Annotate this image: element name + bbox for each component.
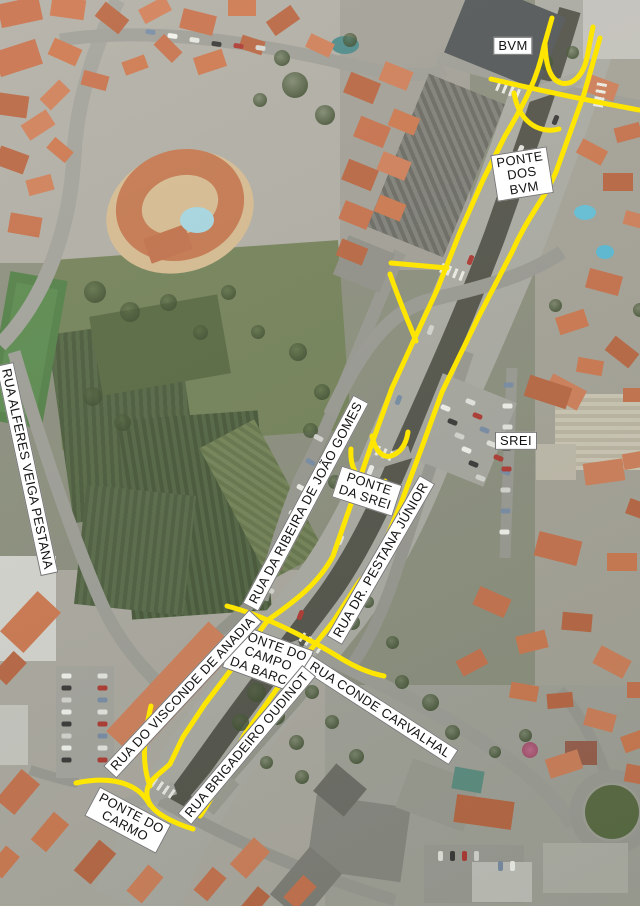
- parked-car: [501, 467, 511, 472]
- terrain-patch: [89, 294, 231, 395]
- roof: [336, 238, 369, 265]
- roof: [0, 145, 30, 174]
- aerial-buildings-layer: [0, 0, 640, 906]
- roof: [546, 691, 573, 708]
- parked-car: [336, 534, 344, 545]
- tree: [445, 725, 460, 740]
- route-joao-gomes-merge: [390, 274, 416, 341]
- label-rua-conde-carvalhal: RUA CONDE CARVALHAL: [302, 655, 458, 765]
- tree: [362, 596, 374, 608]
- parked-car: [366, 464, 374, 475]
- terrain-patch: [536, 444, 576, 480]
- terrain-patch: [0, 271, 68, 429]
- tree: [289, 735, 304, 750]
- parked-car: [97, 746, 107, 751]
- parked-car: [97, 734, 107, 739]
- tree: [328, 475, 342, 489]
- terrain-patch: [543, 843, 628, 893]
- roof: [509, 682, 539, 703]
- parked-car: [492, 454, 503, 462]
- parked-car: [61, 710, 71, 715]
- roof: [0, 769, 40, 815]
- parked-car: [97, 698, 107, 703]
- tree: [349, 749, 364, 764]
- roof: [138, 0, 172, 24]
- terrain-patch: [565, 741, 597, 765]
- roof: [154, 34, 183, 63]
- route-srei-u-turn-south: [351, 449, 385, 484]
- roof: [374, 194, 407, 221]
- roof: [524, 375, 573, 410]
- parked-car: [61, 758, 71, 763]
- terrain-patch: [313, 763, 367, 816]
- parked-car: [474, 474, 485, 482]
- parked-car: [296, 609, 304, 620]
- route-bvm-cross-street: [491, 79, 639, 110]
- tree: [537, 54, 553, 70]
- photo-tint: [0, 0, 640, 906]
- parked-car: [61, 698, 71, 703]
- parked-car: [61, 686, 71, 691]
- tree: [268, 708, 285, 725]
- parked-car: [61, 722, 71, 727]
- tree: [295, 770, 309, 784]
- roof: [305, 33, 335, 58]
- tree: [251, 325, 265, 339]
- roof: [343, 72, 381, 104]
- label-ponte-do-carmo: PONTE DO CARMO: [85, 787, 172, 854]
- tree: [260, 756, 273, 769]
- route-anadia-approach: [144, 706, 151, 786]
- roof: [620, 727, 640, 753]
- terrain-patch: [0, 556, 56, 661]
- pool: [331, 36, 359, 54]
- parked-car: [61, 674, 71, 679]
- parked-car: [438, 851, 443, 861]
- roof: [193, 867, 226, 902]
- parked-car: [97, 722, 107, 727]
- roof: [126, 865, 163, 904]
- route-highlight-overlay: [0, 0, 640, 906]
- parked-car: [471, 412, 482, 420]
- parked-car: [516, 144, 524, 155]
- roof: [95, 2, 130, 35]
- roof: [50, 0, 86, 20]
- parked-car: [460, 446, 471, 454]
- parked-car: [279, 535, 290, 544]
- parked-car: [287, 509, 298, 518]
- terrain-patch: [74, 485, 196, 616]
- roof: [0, 92, 29, 119]
- tree: [83, 387, 102, 406]
- tree: [253, 93, 267, 107]
- tree: [422, 694, 439, 711]
- parked-car: [97, 686, 107, 691]
- parked-car: [502, 425, 512, 430]
- tree: [221, 285, 236, 300]
- parked-car: [453, 432, 464, 440]
- parked-car: [464, 398, 475, 406]
- label-ponte-do-campo-da-barca: PONTE DO CAMPO DA BARCA: [222, 623, 314, 695]
- tree: [282, 72, 308, 98]
- crosswalk: [439, 263, 465, 281]
- roof: [543, 373, 587, 410]
- roof: [585, 74, 619, 101]
- route-bvm-slip-lane: [514, 93, 559, 130]
- roof: [472, 586, 511, 618]
- terrain-patch: [199, 419, 324, 581]
- roof: [622, 450, 640, 470]
- terrain-patch: [90, 132, 270, 292]
- tree: [395, 675, 409, 689]
- roof: [81, 69, 110, 90]
- roof: [353, 116, 391, 148]
- tree: [489, 746, 501, 758]
- tree: [160, 294, 177, 311]
- roof: [378, 61, 413, 91]
- terrain-patch: [444, 0, 566, 90]
- parked-car: [255, 45, 266, 51]
- terrain-patch: [325, 685, 640, 906]
- tree: [315, 105, 335, 125]
- parked-car: [97, 758, 107, 763]
- map-labels: BVMPONTE DOS BVMSREIPONTE DA SREIRUA DA …: [0, 0, 640, 906]
- terrain-patch: [306, 794, 411, 881]
- terrain-patch: [555, 394, 640, 470]
- crosswalk: [495, 81, 521, 99]
- roof: [338, 200, 373, 230]
- label-srei: SREI: [495, 432, 537, 450]
- parked-car: [466, 254, 474, 265]
- label-rua-do-visconde-de-anadia: RUA DO VISCONDE DE ANADIA: [103, 609, 263, 778]
- roof: [8, 212, 43, 237]
- route-srei-u-turn-north: [372, 432, 408, 456]
- roof: [625, 498, 640, 522]
- parked-car: [503, 383, 513, 388]
- terrain-patch: [472, 862, 532, 902]
- river-channel: [172, 10, 570, 806]
- route-main-line-west: [147, 18, 552, 829]
- roof: [585, 268, 623, 296]
- roof: [576, 138, 608, 165]
- roof: [341, 159, 379, 191]
- parked-car: [500, 530, 510, 535]
- tree: [343, 33, 357, 47]
- tree: [280, 694, 293, 707]
- parked-car: [467, 460, 478, 468]
- parked-car: [167, 33, 178, 39]
- label-rua-dr-pestana-junior: RUA DR. PESTANA JÚNIOR: [327, 475, 436, 645]
- terrain-patch: [340, 0, 470, 270]
- roof: [561, 612, 592, 633]
- parked-car: [271, 561, 282, 570]
- terrain-patch: [47, 317, 202, 523]
- route-main-line-east: [200, 38, 600, 816]
- roof: [193, 49, 227, 75]
- roof: [0, 591, 60, 653]
- roof: [583, 707, 617, 732]
- roof: [0, 39, 43, 77]
- pool: [574, 205, 596, 220]
- roof: [21, 109, 56, 140]
- roof: [240, 886, 270, 906]
- terrain-patch: [409, 373, 517, 486]
- terrain-patch: [49, 240, 352, 450]
- roof: [605, 336, 640, 369]
- terrain-patch: [118, 410, 272, 619]
- crosswalk: [150, 777, 175, 799]
- parked-car: [496, 184, 504, 195]
- tree: [305, 685, 319, 699]
- roof: [31, 812, 69, 852]
- aerial-terrain-base: [0, 0, 640, 906]
- terrain-patch: [56, 666, 114, 778]
- terrain-patch: [367, 73, 505, 257]
- tree: [519, 729, 532, 742]
- overpass-ramp: [330, 252, 562, 415]
- roof: [230, 837, 270, 878]
- terrain-patch: [191, 765, 240, 815]
- parked-car: [485, 440, 496, 448]
- roof: [0, 651, 27, 685]
- parked-car: [97, 710, 107, 715]
- terrain-patch: [451, 767, 484, 794]
- parked-car: [501, 488, 511, 493]
- pool: [180, 207, 214, 233]
- parked-car: [478, 426, 489, 434]
- label-bvm: BVM: [493, 37, 532, 55]
- parked-car: [263, 585, 274, 594]
- parked-car: [233, 43, 244, 49]
- parked-car: [97, 674, 107, 679]
- terrain-patch: [333, 235, 395, 293]
- parked-car: [510, 861, 515, 871]
- terrain-patch: [424, 845, 524, 903]
- label-ponte-da-srei: PONTE DA SREI: [331, 466, 402, 517]
- parked-car: [61, 734, 71, 739]
- roof: [121, 54, 148, 75]
- terrain-patch: [0, 282, 58, 417]
- terrain-patch: [0, 705, 28, 765]
- pool: [596, 245, 614, 259]
- parked-car: [251, 666, 259, 677]
- label-ponte-dos-bvm: PONTE DOS BVM: [490, 146, 553, 201]
- tree: [325, 715, 339, 729]
- terrain-patch: [583, 0, 640, 59]
- tree: [345, 615, 360, 630]
- roof: [555, 309, 589, 335]
- roof: [74, 840, 117, 885]
- tree: [274, 50, 290, 66]
- roof: [545, 749, 584, 779]
- road-network: [0, 0, 640, 906]
- label-rua-brigadeiro-oudinot: RUA BRIGADEIRO OUDINOT: [178, 665, 317, 826]
- tree: [386, 636, 399, 649]
- label-rua-da-ribeira-de-joao-gomes: RUA DA RIBEIRA DE JOÃO GOMES: [242, 394, 369, 611]
- parked-car: [426, 324, 434, 335]
- roundabout: [576, 776, 640, 848]
- parked-car: [304, 457, 315, 466]
- terrain-patch: [101, 133, 259, 278]
- parked-car: [145, 29, 156, 35]
- parked-car: [462, 851, 467, 861]
- roof: [46, 137, 73, 163]
- roof: [179, 8, 217, 36]
- parked-car: [439, 404, 450, 412]
- roof: [283, 875, 316, 906]
- roof: [266, 4, 300, 35]
- roof: [25, 174, 54, 196]
- parked-car: [551, 114, 559, 125]
- terrain-patch: [270, 847, 342, 906]
- crosswalk: [298, 632, 323, 654]
- flowering-tree: [522, 742, 538, 758]
- roof: [388, 108, 421, 135]
- terrain-patch: [0, 570, 330, 906]
- roof: [614, 121, 640, 142]
- terrain-patch: [535, 0, 640, 125]
- parked-car: [312, 433, 323, 442]
- satellite-map-view[interactable]: BVMPONTE DOS BVMSREIPONTE DA SREIRUA DA …: [0, 0, 640, 906]
- bridge-decks: [125, 78, 580, 805]
- roof: [603, 173, 633, 191]
- roof: [48, 38, 83, 67]
- tree: [247, 683, 266, 702]
- roof: [0, 0, 43, 28]
- tree: [549, 299, 562, 312]
- parked-car: [450, 851, 455, 861]
- roof: [623, 210, 640, 230]
- tree: [303, 423, 318, 438]
- tree: [193, 325, 208, 340]
- route-bvm-u-turn: [545, 27, 593, 83]
- roof: [583, 458, 626, 485]
- route-joao-gomes-stub: [391, 263, 447, 268]
- tree: [120, 302, 140, 322]
- terrain-patch: [395, 758, 480, 831]
- roof: [39, 79, 70, 110]
- crosswalk: [593, 82, 607, 107]
- parked-car: [498, 861, 503, 871]
- parked-car: [394, 394, 402, 405]
- route-carmo-west-branch: [76, 780, 150, 805]
- parked-car: [500, 509, 510, 514]
- roof: [627, 682, 640, 698]
- roof: [228, 0, 256, 16]
- roof: [592, 645, 631, 679]
- roof: [576, 356, 604, 375]
- tree: [314, 384, 330, 400]
- roof: [376, 151, 411, 181]
- roof: [623, 388, 640, 402]
- terrain-patch: [535, 50, 640, 906]
- roof: [106, 622, 238, 759]
- roof: [534, 531, 583, 566]
- tree: [84, 281, 106, 303]
- tree: [114, 414, 131, 431]
- parked-car: [61, 746, 71, 751]
- terrain-patch: [0, 0, 343, 263]
- tree: [289, 343, 307, 361]
- roof: [0, 845, 20, 878]
- roof: [456, 648, 489, 676]
- parked-car: [295, 483, 306, 492]
- parked-car: [474, 851, 479, 861]
- terrain-patch: [143, 224, 193, 263]
- tree: [566, 46, 579, 59]
- roof: [607, 553, 637, 571]
- roof: [238, 35, 265, 56]
- roof: [515, 630, 548, 655]
- parked-car: [189, 37, 200, 43]
- parked-car: [211, 41, 222, 47]
- parked-car: [446, 418, 457, 426]
- label-rua-alferes-veiga-pestana: RUA ALFERES VEIGA PESTANA: [0, 362, 58, 576]
- roof: [453, 794, 514, 830]
- crosswalk: [368, 443, 394, 461]
- route-carvalhal-crossing: [227, 606, 384, 676]
- parked-car: [503, 404, 513, 409]
- parked-car: [502, 446, 512, 451]
- tree: [232, 714, 249, 731]
- roof: [624, 764, 640, 787]
- parked-car: [499, 468, 510, 476]
- tree: [633, 303, 640, 317]
